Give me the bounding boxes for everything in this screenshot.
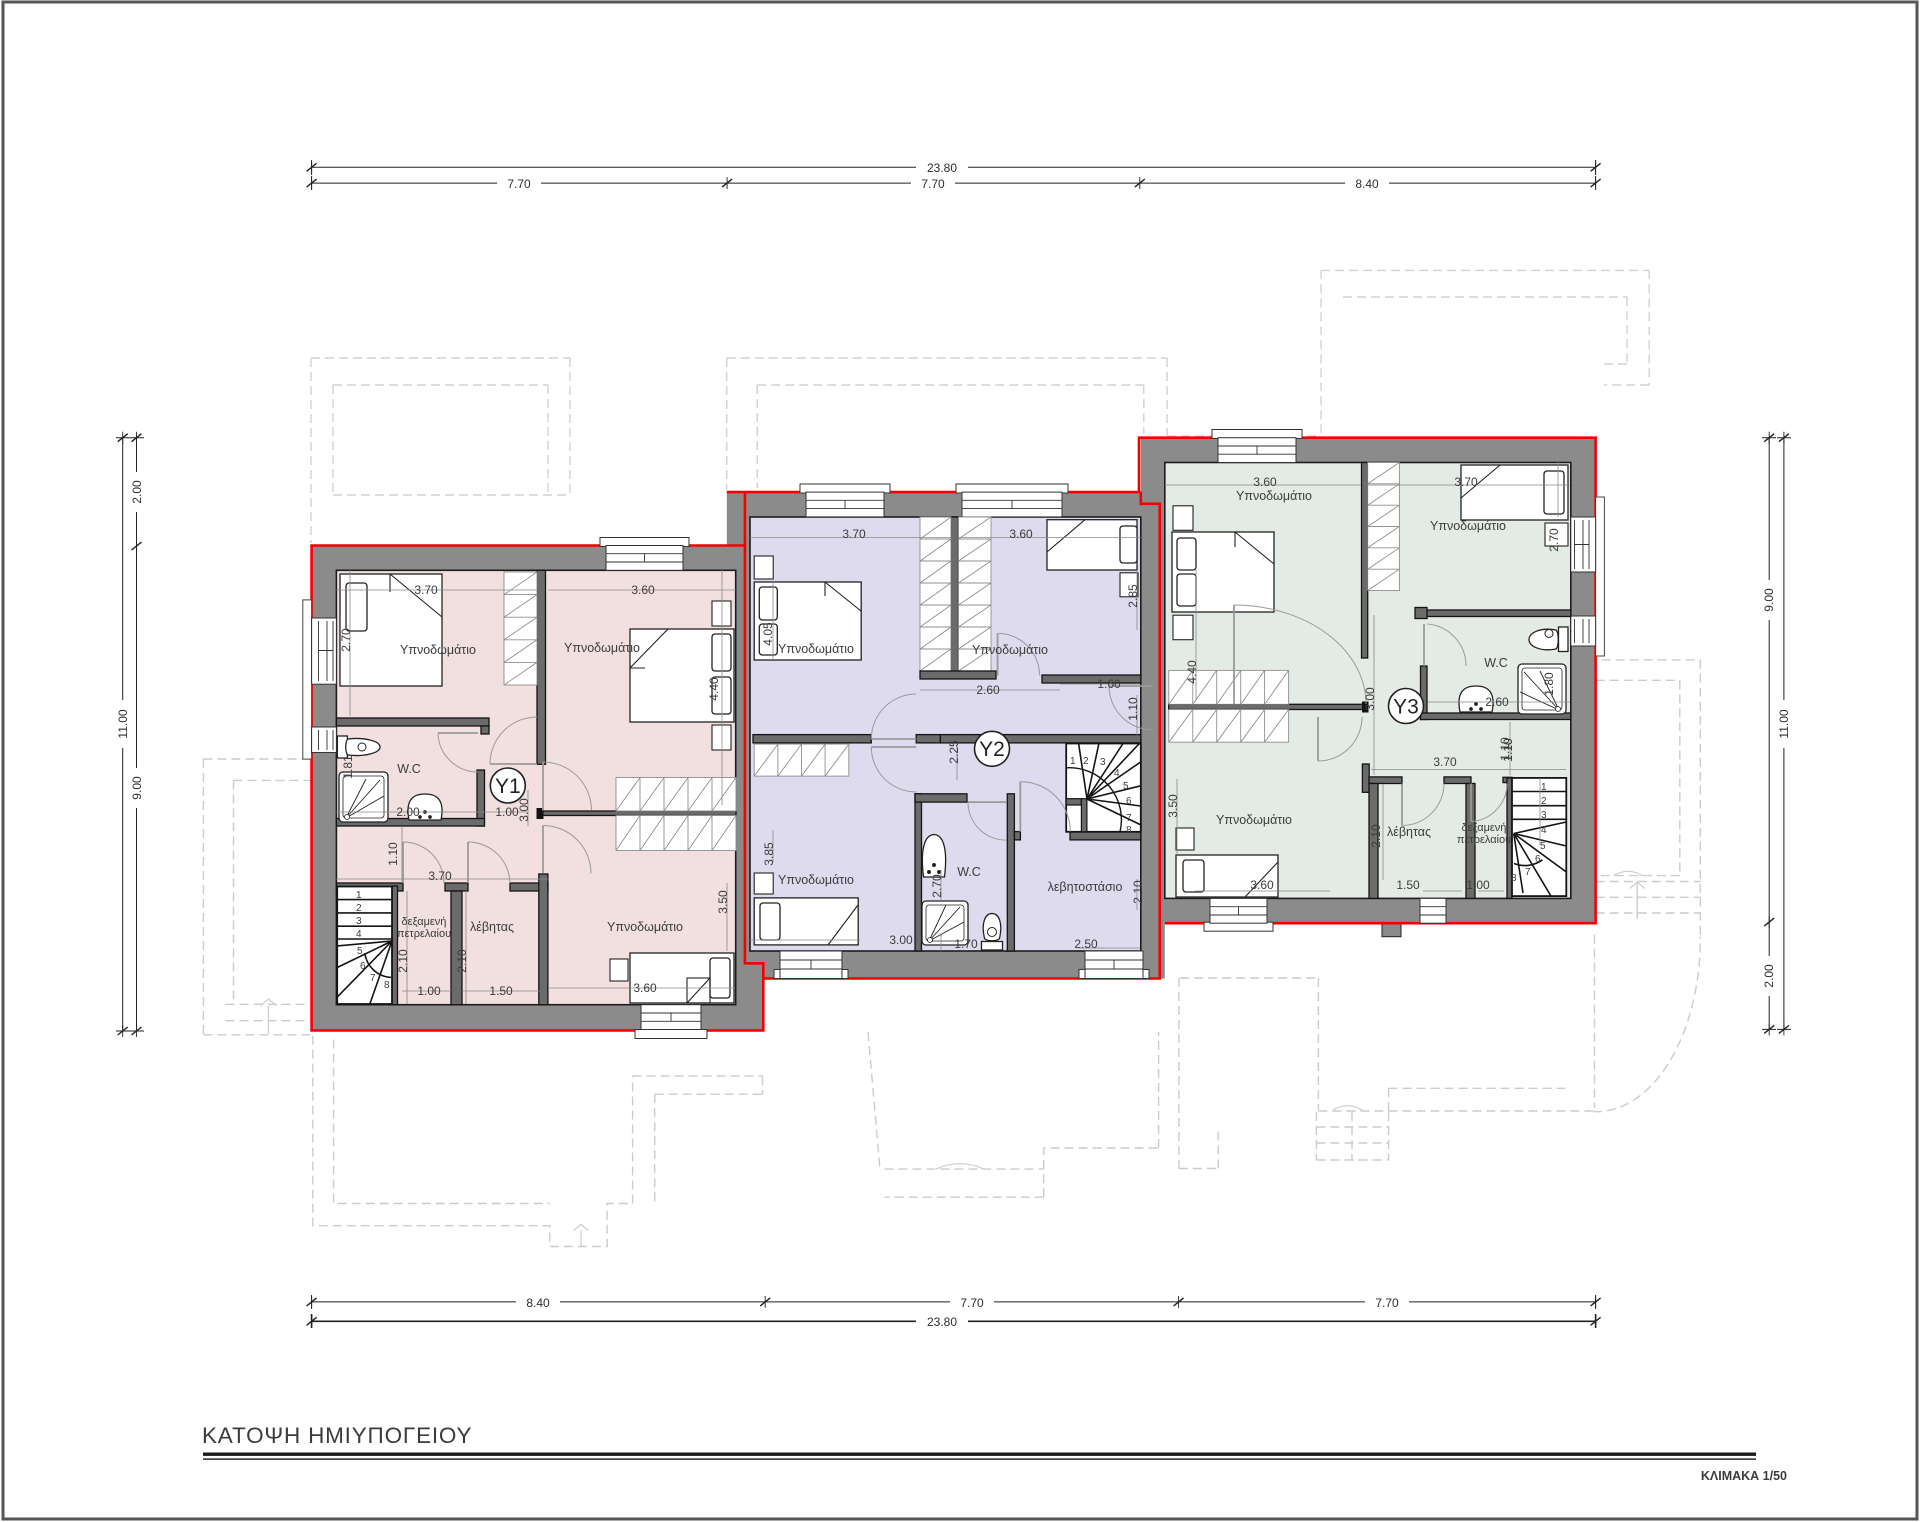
svg-text:8.40: 8.40 (1355, 177, 1379, 191)
svg-text:3.70: 3.70 (414, 583, 438, 597)
svg-text:Υπνοδωμάτιο: Υπνοδωμάτιο (607, 920, 683, 934)
svg-text:2.70: 2.70 (339, 628, 353, 652)
svg-text:Υπνοδωμάτιο: Υπνοδωμάτιο (400, 643, 476, 657)
svg-text:Υπνοδωμάτιο: Υπνοδωμάτιο (778, 642, 854, 656)
svg-text:8.40: 8.40 (526, 1296, 550, 1310)
svg-text:11.00: 11.00 (116, 709, 130, 738)
svg-text:2.50: 2.50 (1074, 937, 1098, 951)
svg-text:λέβητας: λέβητας (1387, 825, 1431, 839)
svg-text:11.00: 11.00 (1777, 709, 1791, 738)
svg-text:2.70: 2.70 (930, 874, 944, 898)
svg-text:3.50: 3.50 (716, 890, 730, 914)
svg-text:Y2: Y2 (979, 738, 1005, 761)
svg-text:9.00: 9.00 (130, 776, 144, 800)
svg-text:1: 1 (1070, 756, 1076, 767)
svg-text:3: 3 (1100, 757, 1106, 768)
svg-text:1.81: 1.81 (341, 755, 355, 779)
svg-text:1.00: 1.00 (1466, 878, 1490, 892)
svg-text:2.00: 2.00 (1762, 964, 1776, 988)
svg-text:8: 8 (384, 980, 390, 991)
svg-text:3.70: 3.70 (1454, 475, 1478, 489)
svg-text:1.60: 1.60 (1097, 677, 1121, 691)
svg-text:3.50: 3.50 (1166, 794, 1180, 818)
svg-text:6: 6 (360, 961, 366, 972)
svg-text:7.70: 7.70 (507, 177, 531, 191)
svg-text:2.60: 2.60 (1485, 695, 1509, 709)
svg-text:λέβητας: λέβητας (470, 920, 514, 934)
svg-text:ΚΑΤΟΨΗ ΗΜΙΥΠΟΓΕΙΟΥ: ΚΑΤΟΨΗ ΗΜΙΥΠΟΓΕΙΟΥ (202, 1423, 472, 1448)
svg-text:3: 3 (1541, 810, 1547, 821)
svg-text:3: 3 (356, 916, 362, 927)
svg-text:Υπνοδωμάτιο: Υπνοδωμάτιο (1430, 519, 1506, 533)
svg-text:4.40: 4.40 (707, 677, 721, 701)
svg-text:1.10: 1.10 (1126, 697, 1140, 721)
svg-text:2.70: 2.70 (1547, 528, 1561, 552)
svg-text:7: 7 (1126, 813, 1132, 824)
svg-text:9.00: 9.00 (1762, 588, 1776, 612)
svg-text:1.70: 1.70 (954, 937, 978, 951)
svg-text:Υπνοδωμάτιο: Υπνοδωμάτιο (972, 643, 1048, 657)
svg-text:3.60: 3.60 (1009, 527, 1033, 541)
svg-text:2: 2 (1083, 756, 1089, 767)
svg-text:W.C: W.C (397, 762, 421, 776)
svg-text:6: 6 (1126, 796, 1132, 807)
svg-text:1.80: 1.80 (1542, 672, 1556, 696)
svg-text:1: 1 (1541, 782, 1547, 793)
svg-text:2: 2 (356, 903, 362, 914)
svg-text:1.50: 1.50 (1396, 878, 1420, 892)
svg-text:2: 2 (1541, 796, 1547, 807)
svg-text:W.C: W.C (1484, 656, 1508, 670)
svg-text:W.C: W.C (957, 865, 981, 879)
svg-text:Y1: Y1 (495, 775, 521, 798)
svg-text:8: 8 (1511, 873, 1517, 884)
svg-text:4: 4 (356, 929, 362, 940)
svg-text:5: 5 (1123, 781, 1129, 792)
svg-text:δεξαμενή: δεξαμενή (402, 916, 447, 928)
svg-text:Y3: Y3 (1393, 696, 1419, 719)
svg-text:3.85: 3.85 (762, 842, 776, 866)
svg-text:6: 6 (1535, 854, 1541, 865)
svg-text:3.00: 3.00 (1363, 687, 1377, 711)
svg-text:3.70: 3.70 (428, 869, 452, 883)
svg-text:3.00: 3.00 (517, 798, 531, 822)
svg-text:2.10: 2.10 (1369, 824, 1383, 848)
svg-text:2.00: 2.00 (130, 480, 144, 504)
svg-text:2.60: 2.60 (976, 683, 1000, 697)
svg-text:δεξαμενή: δεξαμενή (1462, 822, 1507, 834)
svg-text:5: 5 (1540, 841, 1546, 852)
svg-text:3.70: 3.70 (842, 527, 866, 541)
svg-text:7.70: 7.70 (921, 177, 945, 191)
svg-text:5: 5 (357, 946, 363, 957)
svg-text:8: 8 (1126, 825, 1132, 836)
svg-text:1.00: 1.00 (495, 805, 519, 819)
svg-text:4: 4 (1114, 768, 1120, 779)
svg-text:Υπνοδωμάτιο: Υπνοδωμάτιο (778, 873, 854, 887)
svg-text:2.10: 2.10 (1131, 880, 1145, 904)
svg-text:2.10: 2.10 (396, 949, 410, 973)
svg-text:7.70: 7.70 (960, 1296, 984, 1310)
svg-text:3.60: 3.60 (631, 583, 655, 597)
svg-text:4.40: 4.40 (1185, 660, 1199, 684)
svg-text:3.00: 3.00 (889, 933, 913, 947)
svg-text:7: 7 (1525, 867, 1531, 878)
svg-text:7.70: 7.70 (1375, 1296, 1399, 1310)
svg-text:4.05: 4.05 (761, 622, 775, 646)
svg-text:Υπνοδωμάτιο: Υπνοδωμάτιο (1216, 813, 1292, 827)
svg-text:1: 1 (356, 890, 362, 901)
svg-text:πετρελαίου: πετρελαίου (397, 928, 451, 940)
svg-text:1.10: 1.10 (386, 842, 400, 866)
svg-text:7: 7 (370, 973, 376, 984)
svg-text:2.00: 2.00 (396, 805, 420, 819)
svg-text:3.60: 3.60 (1250, 878, 1274, 892)
svg-text:πετρελαίου: πετρελαίου (1457, 834, 1511, 846)
svg-text:2.10: 2.10 (455, 949, 469, 973)
svg-text:4: 4 (1541, 825, 1547, 836)
svg-text:λεβητοστάσιο: λεβητοστάσιο (1048, 880, 1123, 894)
svg-text:Υπνοδωμάτιο: Υπνοδωμάτιο (564, 641, 640, 655)
svg-text:1.50: 1.50 (489, 984, 513, 998)
svg-text:2.85: 2.85 (1126, 584, 1140, 608)
svg-text:3.60: 3.60 (633, 981, 657, 995)
svg-text:3.60: 3.60 (1253, 475, 1277, 489)
svg-text:1.10: 1.10 (1498, 737, 1512, 761)
svg-text:23.80: 23.80 (927, 1315, 957, 1329)
svg-text:Υπνοδωμάτιο: Υπνοδωμάτιο (1236, 489, 1312, 503)
svg-text:23.80: 23.80 (927, 161, 957, 175)
svg-text:2.25: 2.25 (947, 740, 961, 764)
svg-text:1.00: 1.00 (417, 984, 441, 998)
svg-text:3.70: 3.70 (1433, 755, 1457, 769)
svg-text:ΚΛΙΜΑΚΑ 1/50: ΚΛΙΜΑΚΑ 1/50 (1701, 1469, 1787, 1483)
